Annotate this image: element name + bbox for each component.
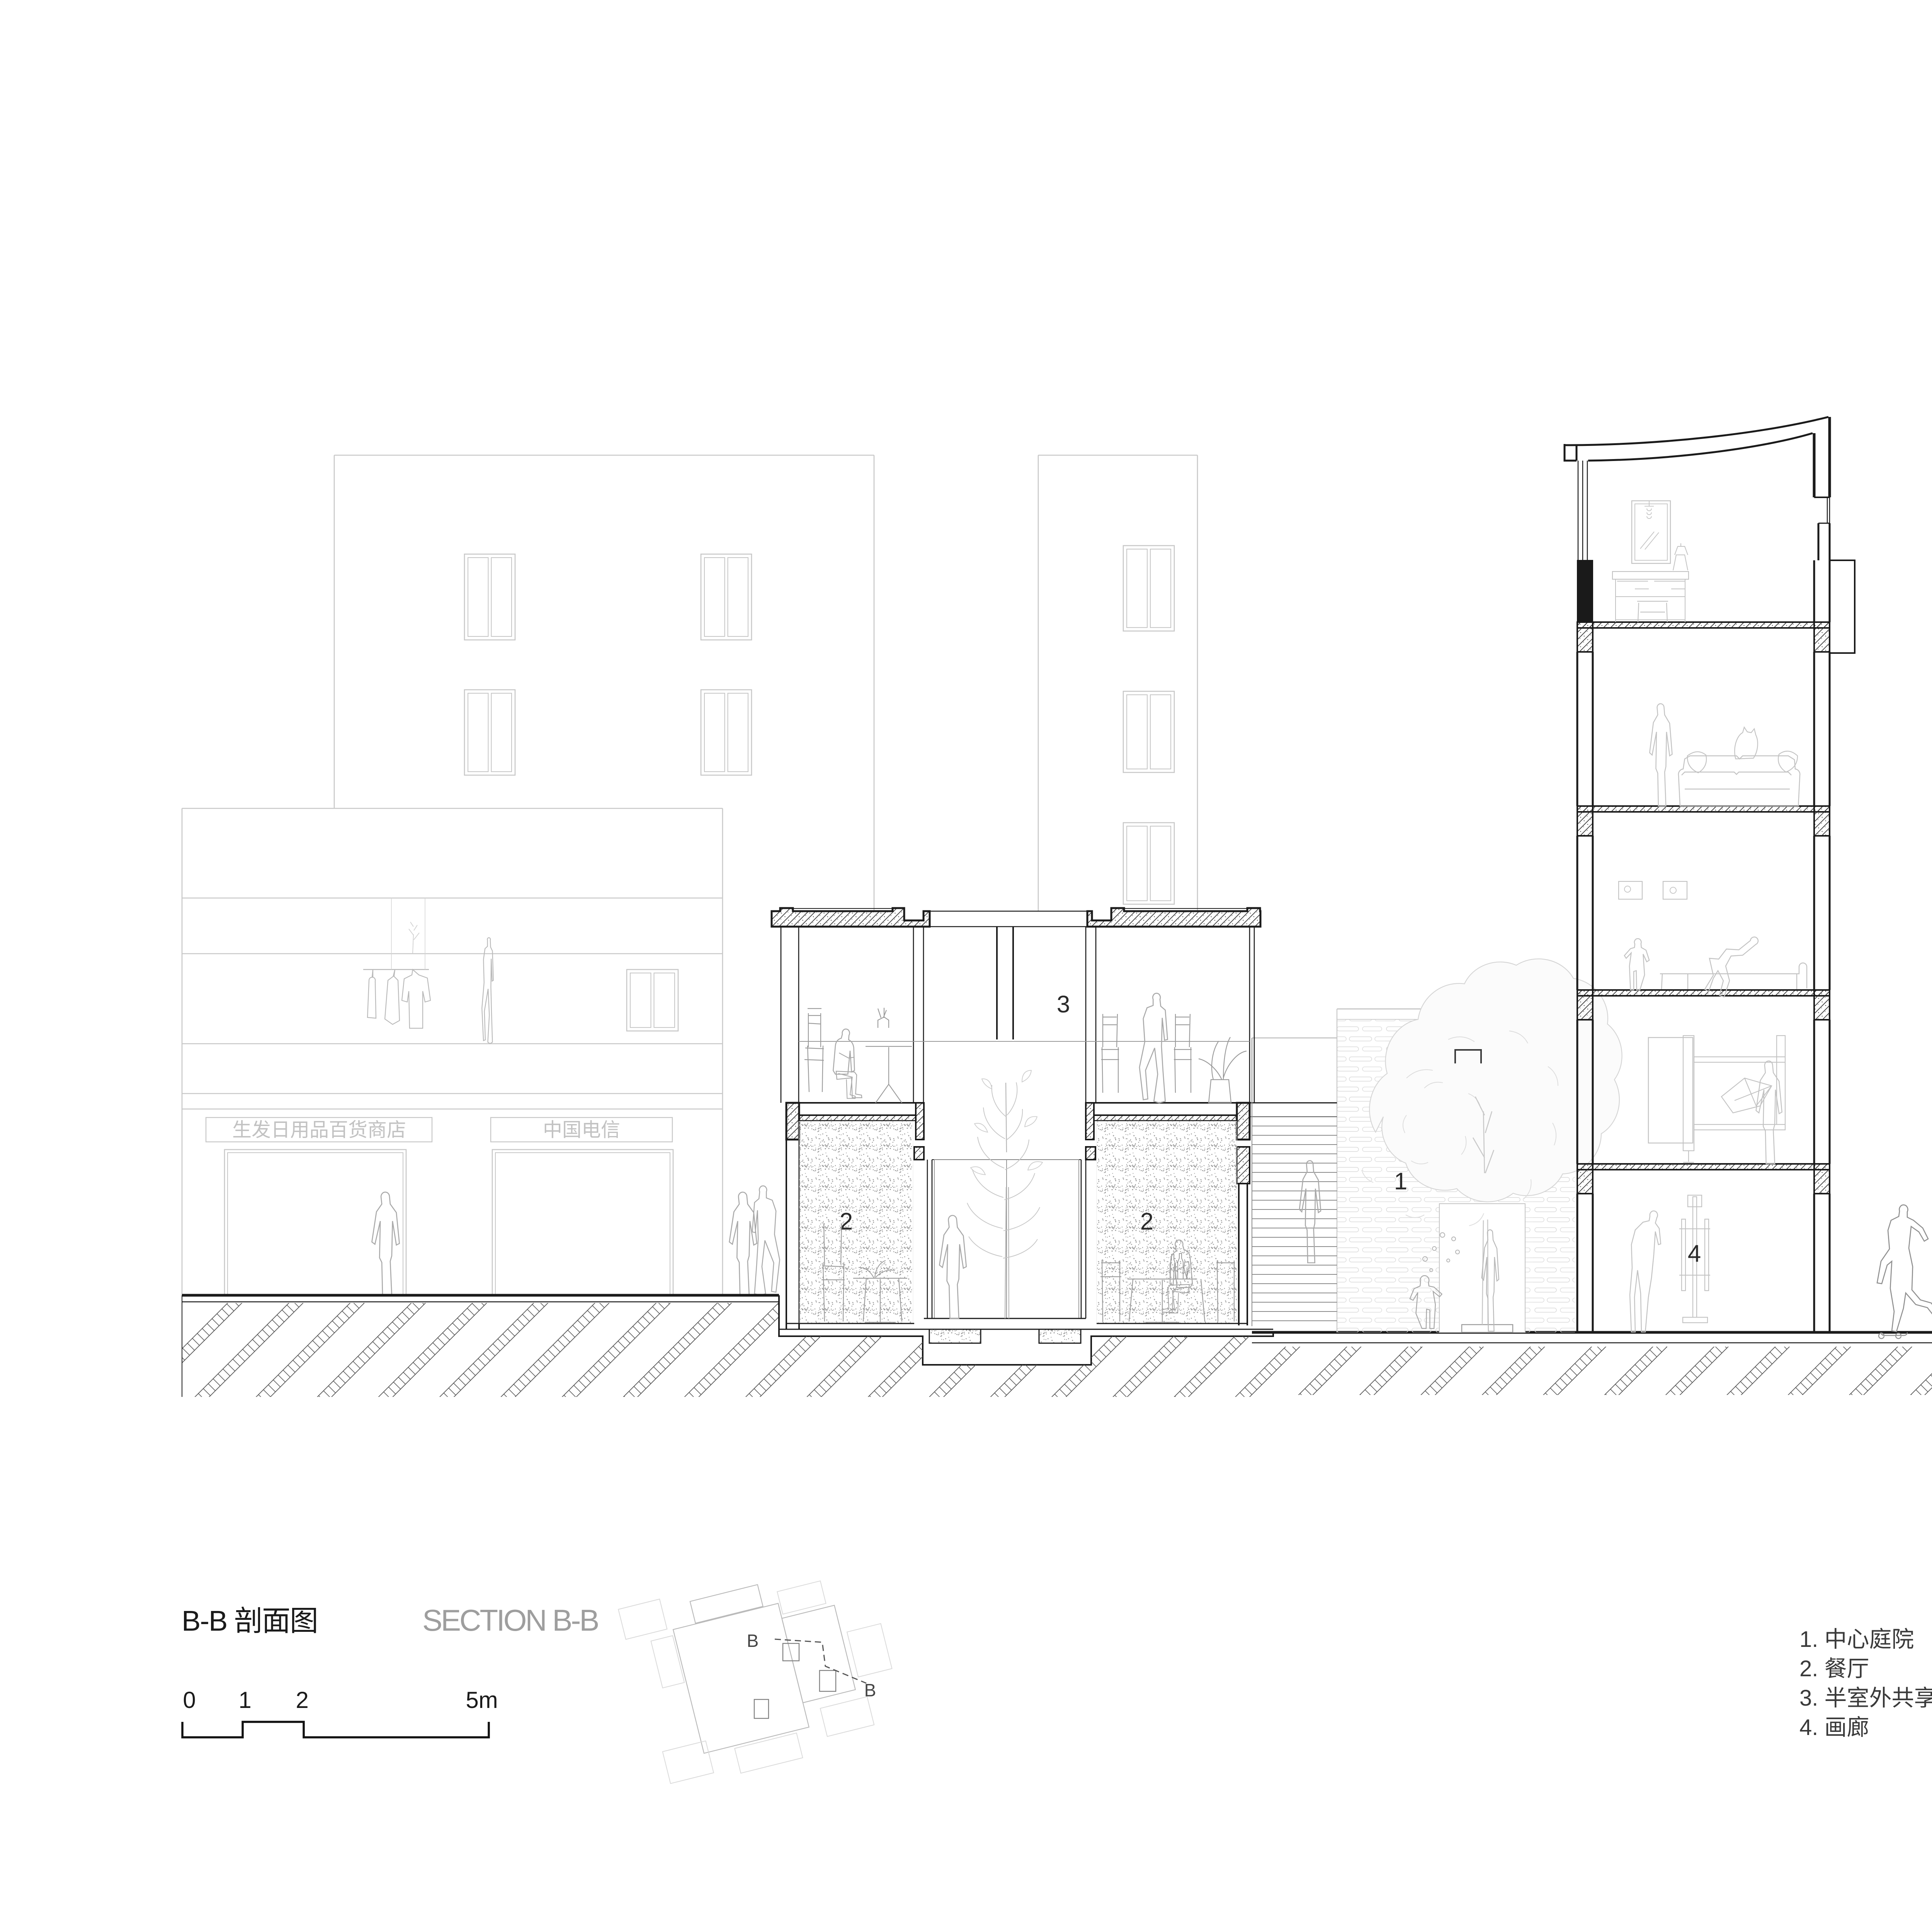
svg-text:生发日用品百货商店: 生发日用品百货商店 bbox=[232, 1119, 406, 1141]
svg-text:B: B bbox=[747, 1631, 759, 1651]
svg-text:2. 餐厅: 2. 餐厅 bbox=[1799, 1656, 1869, 1681]
svg-text:5m: 5m bbox=[466, 1687, 498, 1713]
svg-text:1. 中心庭院: 1. 中心庭院 bbox=[1799, 1627, 1914, 1652]
svg-text:3. 半室外共享社区空间: 3. 半室外共享社区空间 bbox=[1799, 1686, 1932, 1711]
svg-text:中国电信: 中国电信 bbox=[543, 1119, 620, 1141]
svg-text:4. 画廊: 4. 画廊 bbox=[1799, 1715, 1869, 1740]
svg-text:SECTION B-B: SECTION B-B bbox=[422, 1603, 598, 1637]
svg-text:B: B bbox=[864, 1680, 876, 1700]
svg-text:1: 1 bbox=[1394, 1168, 1407, 1195]
svg-text:B-B 剖面图: B-B 剖面图 bbox=[182, 1605, 318, 1637]
svg-text:0: 0 bbox=[183, 1687, 196, 1713]
svg-text:4: 4 bbox=[1688, 1240, 1701, 1267]
svg-text:2: 2 bbox=[296, 1687, 308, 1713]
svg-text:2: 2 bbox=[1140, 1208, 1153, 1235]
svg-text:3: 3 bbox=[1057, 991, 1070, 1018]
svg-text:1: 1 bbox=[238, 1687, 251, 1713]
